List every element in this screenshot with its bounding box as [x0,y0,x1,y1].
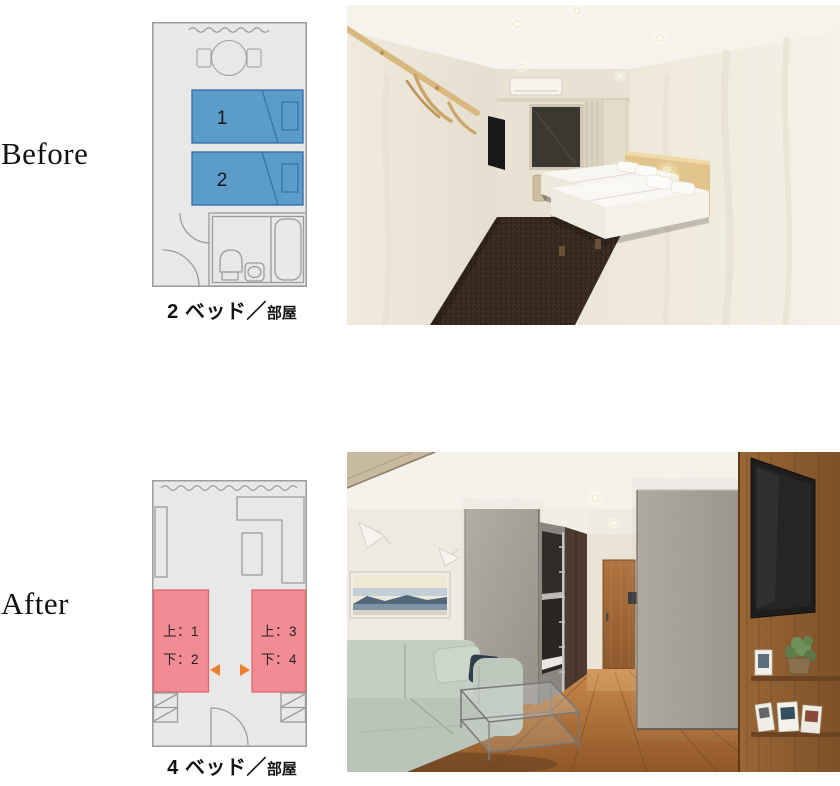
before-label: Before [1,136,88,172]
downlight [592,495,598,501]
tv [488,116,505,170]
shelf-board [751,676,840,681]
downlight [612,521,617,526]
plant-pot [787,658,811,674]
bunk-left-upper-label: 上：1 [163,624,199,639]
before-caption-main: 2 ベッド [167,301,246,323]
chair-right [247,49,261,67]
bunk-left: 上：1 下：2 [154,590,209,692]
after-room-photo [347,452,840,772]
before-caption: 2 ベッド／部屋 [148,295,316,324]
window [529,104,583,170]
wall-painting [350,572,450,618]
bunk-right: 上：3 下：4 [252,590,306,692]
bed-leg [595,239,601,249]
bunk-left-lower-label: 下：2 [163,652,199,667]
after-caption-main: 4 ベッド [167,757,246,779]
rail-hook [435,86,439,90]
rail-hook [380,51,384,55]
bunk-left-area [154,590,209,692]
before-room-photo [347,5,840,325]
tv [751,458,815,618]
bed-leg [559,246,565,256]
magazines [755,702,822,734]
wall-texture [385,75,389,325]
wall-panel-box [628,592,637,604]
after-floor-plan: 上：1 下：2 上：3 下：4 [152,480,307,747]
bed-2: 2 [192,152,303,205]
after-caption-separator: ／ [246,757,267,779]
bed-2-number: 2 [217,170,228,191]
shelf-board [751,732,840,737]
upper-bunk-opening [542,531,562,594]
round-table [212,41,247,76]
bed-2-mattress [192,152,303,205]
door-handle [606,613,608,621]
after-caption: 4 ベッド／部屋 [148,751,316,780]
bed-1-mattress [192,90,303,143]
bunk-right-area [252,590,306,692]
bunk-right-lower-label: 下：4 [261,652,297,667]
before-caption-separator: ／ [246,301,267,323]
bed-1: 1 [192,90,303,143]
bed-1-number: 1 [217,108,228,129]
entrance-door [603,560,635,669]
air-conditioner [510,78,562,95]
chair-left [197,49,211,67]
after-caption-sub: 部屋 [267,761,297,778]
before-floor-plan: 1 2 [152,22,307,287]
bunk-pod-near [637,490,739,729]
after-label: After [1,586,69,622]
corridor-light-pool [587,669,637,691]
before-after-comparison: Before 1 2 [0,0,840,786]
bunk-right-upper-label: 上：3 [261,624,297,639]
before-room-scene [347,5,840,325]
before-caption-sub: 部屋 [267,305,297,322]
photo-frame [755,650,772,675]
media-unit [739,452,840,772]
after-room-scene [347,452,840,772]
